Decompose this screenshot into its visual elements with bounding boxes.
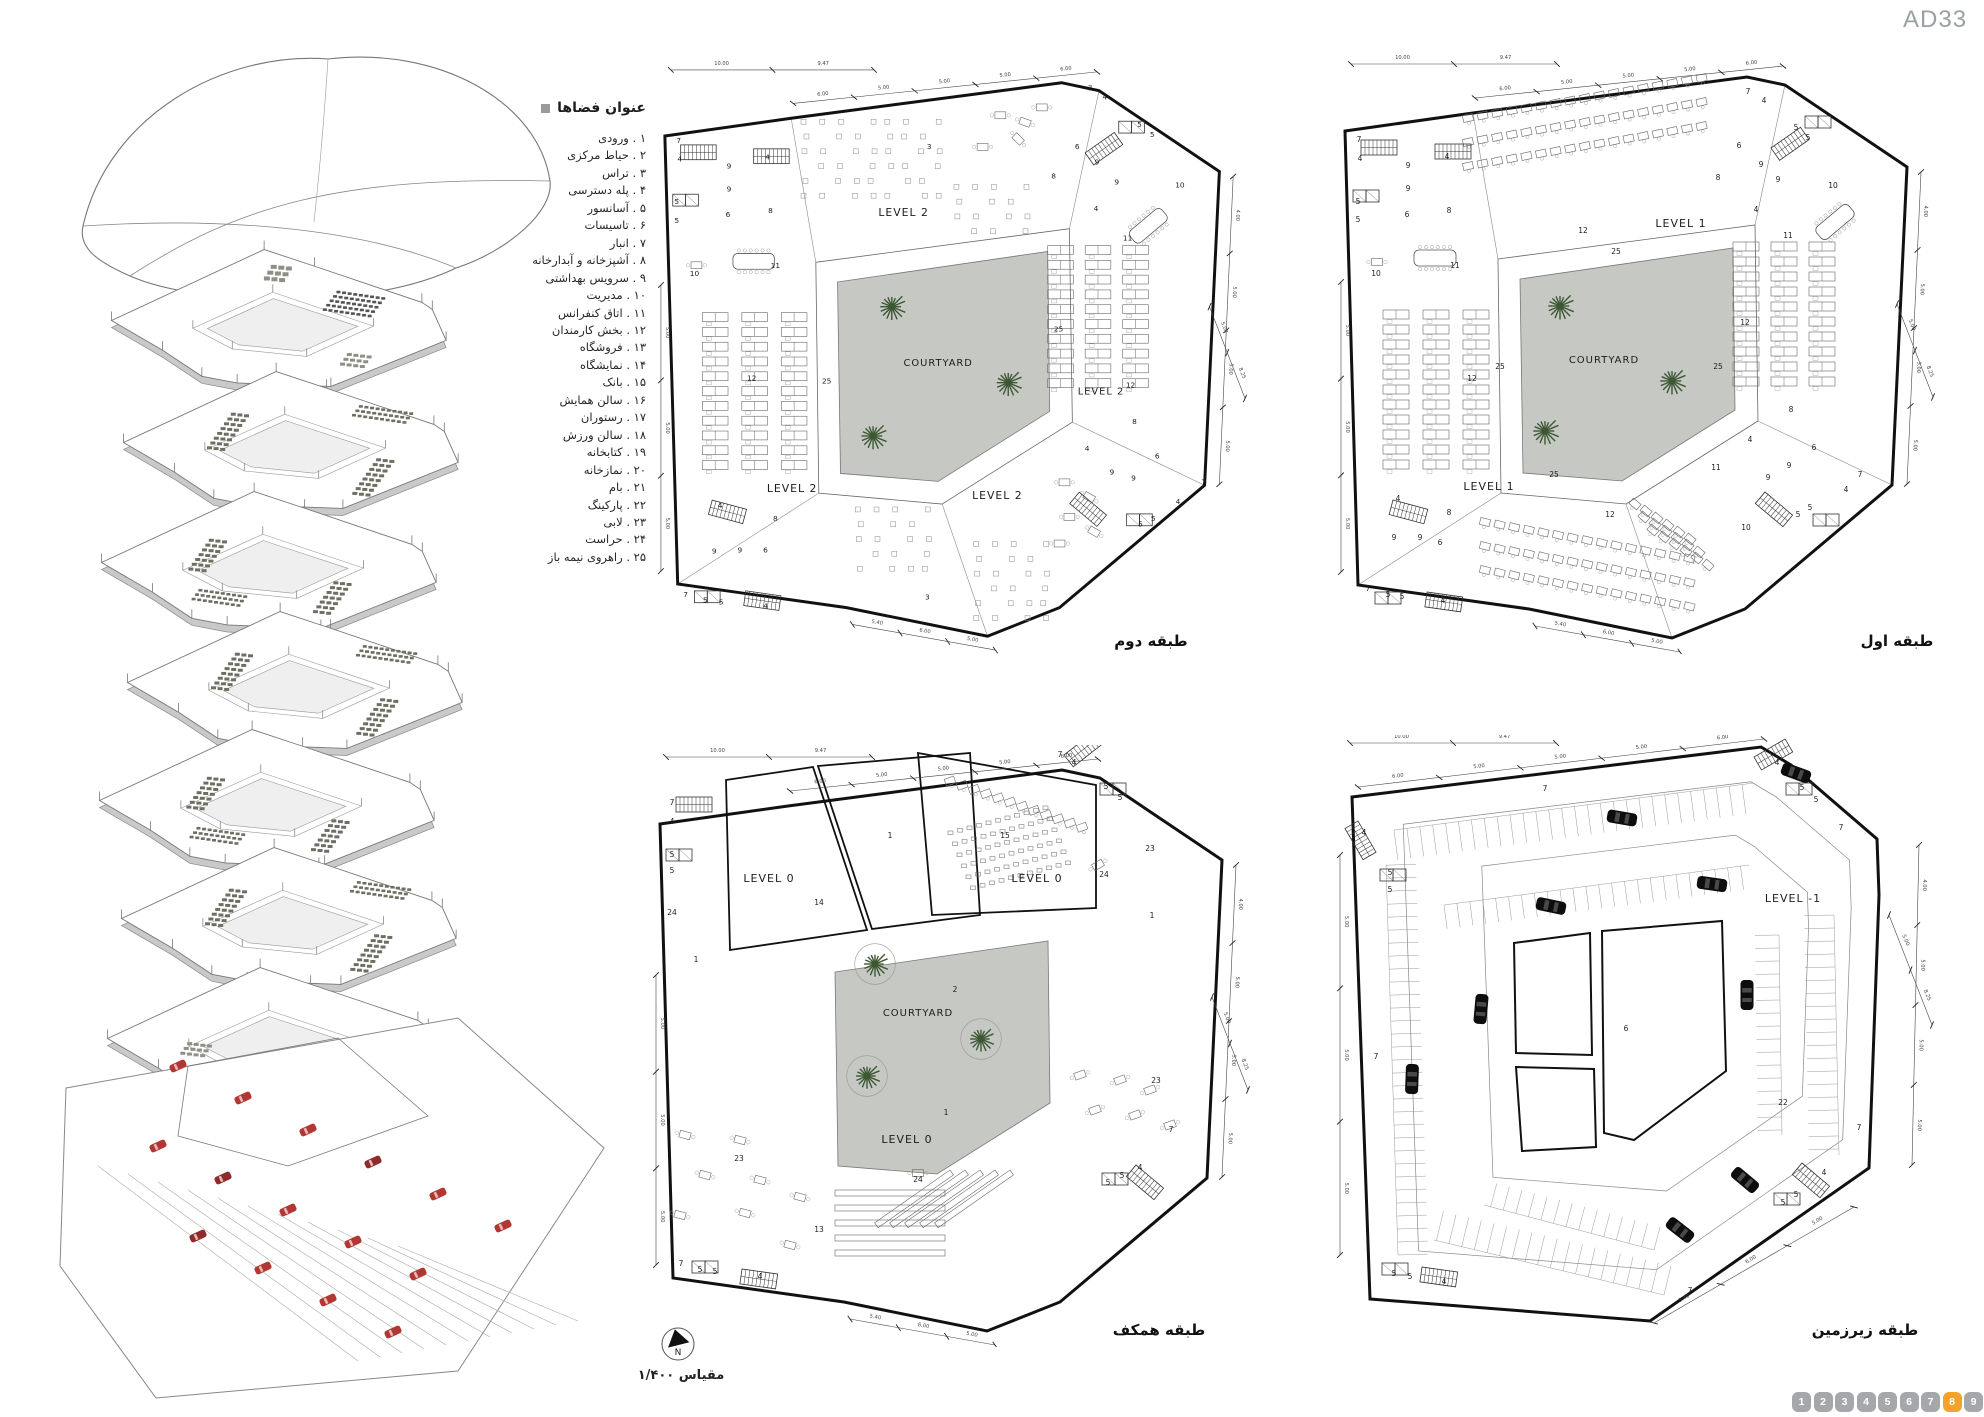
page-button-4[interactable]: 4 xyxy=(1857,1392,1876,1412)
page-pagination: 123456789 xyxy=(1792,1392,1983,1412)
svg-text:5: 5 xyxy=(1106,1178,1111,1187)
svg-text:6.00: 6.00 xyxy=(1392,773,1404,780)
svg-text:7: 7 xyxy=(1839,823,1844,832)
svg-text:8: 8 xyxy=(773,514,778,523)
legend-item: ۱۵ . بانک xyxy=(398,374,646,391)
svg-text:7: 7 xyxy=(1058,750,1063,759)
svg-text:5: 5 xyxy=(1150,130,1155,139)
svg-text:5.00: 5.00 xyxy=(659,1114,665,1126)
svg-text:12: 12 xyxy=(1740,318,1750,327)
presentation-board: AD33 عنوان فضاها ۱ . ورودی۲ . حیاط مرکزی… xyxy=(0,0,1984,1417)
svg-text:5: 5 xyxy=(713,1267,718,1276)
legend-item: ۳ . تراس xyxy=(398,165,646,182)
svg-text:4: 4 xyxy=(1748,435,1753,444)
plan-title-ground: طبقه همکف xyxy=(1069,1321,1249,1339)
svg-text:25: 25 xyxy=(1495,362,1505,371)
svg-text:23: 23 xyxy=(1145,844,1155,853)
svg-text:5: 5 xyxy=(1800,783,1805,792)
svg-text:6.00: 6.00 xyxy=(1717,735,1729,741)
svg-text:5: 5 xyxy=(703,596,708,605)
svg-text:6: 6 xyxy=(1624,1024,1629,1033)
svg-text:4: 4 xyxy=(1442,1277,1447,1286)
svg-text:5: 5 xyxy=(1781,1198,1786,1207)
plan-title-basement: طبقه زیرزمین xyxy=(1775,1321,1955,1339)
svg-text:10: 10 xyxy=(1175,180,1185,189)
svg-text:5: 5 xyxy=(1386,590,1391,599)
svg-text:4: 4 xyxy=(1822,1168,1827,1177)
scale-note: مقیاس ۱/۴۰۰ xyxy=(626,1368,736,1383)
svg-text:8.25: 8.25 xyxy=(1237,367,1247,380)
svg-text:9.47: 9.47 xyxy=(815,748,827,754)
svg-text:7: 7 xyxy=(679,1259,684,1268)
svg-text:4: 4 xyxy=(763,602,768,611)
svg-text:5.00: 5.00 xyxy=(1226,1132,1233,1144)
svg-text:10: 10 xyxy=(1371,269,1381,278)
svg-text:6: 6 xyxy=(1405,210,1410,219)
svg-text:5.00: 5.00 xyxy=(1900,934,1910,947)
svg-text:7: 7 xyxy=(1858,470,1863,479)
svg-text:8.25: 8.25 xyxy=(1922,989,1932,1002)
svg-text:COURTYARD: COURTYARD xyxy=(883,1008,953,1019)
svg-text:5.00: 5.00 xyxy=(1219,321,1229,334)
svg-text:LEVEL 2: LEVEL 2 xyxy=(767,482,817,495)
svg-text:5.00: 5.00 xyxy=(937,765,949,772)
legend-item: ۲۳ . لابی xyxy=(398,514,646,531)
legend-item: ۱۸ . سالن ورزش xyxy=(398,427,646,444)
legend-title: عنوان فضاها xyxy=(557,100,646,116)
svg-text:5.00: 5.00 xyxy=(664,422,670,433)
svg-text:5: 5 xyxy=(1104,782,1109,791)
svg-text:1: 1 xyxy=(944,1108,949,1117)
svg-text:3: 3 xyxy=(925,593,930,602)
svg-text:4: 4 xyxy=(1396,494,1401,503)
svg-text:9: 9 xyxy=(712,546,717,555)
svg-text:5.00: 5.00 xyxy=(1916,1119,1922,1131)
svg-text:11: 11 xyxy=(771,261,781,270)
svg-text:24: 24 xyxy=(913,1175,923,1184)
svg-text:11: 11 xyxy=(1711,463,1721,472)
legend-item: ۱۱ . اتاق کنفرانس xyxy=(398,305,646,322)
svg-text:5.40: 5.40 xyxy=(869,1313,881,1321)
svg-text:5.00: 5.00 xyxy=(1917,1039,1923,1051)
svg-text:5.00: 5.00 xyxy=(1233,976,1240,988)
svg-text:5.00: 5.00 xyxy=(1473,763,1485,770)
svg-text:4: 4 xyxy=(1441,596,1446,605)
svg-text:9: 9 xyxy=(1109,467,1114,476)
svg-text:5.00: 5.00 xyxy=(938,78,950,85)
svg-text:5.00: 5.00 xyxy=(659,1211,665,1223)
svg-text:5: 5 xyxy=(670,866,675,875)
svg-text:23: 23 xyxy=(1151,1076,1161,1085)
svg-text:7: 7 xyxy=(683,590,688,599)
svg-text:25: 25 xyxy=(822,377,832,386)
svg-text:9.47: 9.47 xyxy=(818,61,829,67)
legend-item-list: ۱ . ورودی۲ . حیاط مرکزی۳ . تراس۴ . پله د… xyxy=(398,130,646,566)
svg-text:4: 4 xyxy=(1762,96,1767,105)
svg-text:5: 5 xyxy=(1400,592,1405,601)
svg-text:5.00: 5.00 xyxy=(1918,283,1925,295)
svg-text:4: 4 xyxy=(1103,93,1108,102)
legend-item: ۱۰ . مدیریت xyxy=(398,287,646,304)
svg-text:7: 7 xyxy=(1088,84,1093,93)
legend-item: ۲ . حیاط مرکزی xyxy=(398,147,646,164)
legend-item: ۶ . تاسیسات xyxy=(398,217,646,234)
svg-text:4.00: 4.00 xyxy=(1922,205,1929,217)
svg-text:6: 6 xyxy=(1075,142,1080,151)
svg-text:5.00: 5.00 xyxy=(1561,79,1573,86)
svg-text:5.00: 5.00 xyxy=(1231,286,1238,298)
svg-text:9: 9 xyxy=(738,545,743,554)
svg-text:4: 4 xyxy=(1844,485,1849,494)
svg-text:5: 5 xyxy=(698,1265,703,1274)
svg-text:4: 4 xyxy=(1085,444,1090,453)
legend-item: ۸ . آشپزخانه و آبدارخانه xyxy=(398,252,646,269)
plan-title-first: طبقه اول xyxy=(1807,632,1984,650)
svg-text:9: 9 xyxy=(1787,461,1792,470)
legend-item: ۲۴ . حراست xyxy=(398,531,646,548)
svg-text:5: 5 xyxy=(1388,885,1393,894)
svg-text:LEVEL 2: LEVEL 2 xyxy=(972,489,1022,502)
svg-text:24: 24 xyxy=(1099,870,1109,879)
svg-text:6.00: 6.00 xyxy=(917,1322,929,1330)
svg-text:9: 9 xyxy=(1766,473,1771,482)
svg-text:5.00: 5.00 xyxy=(1344,518,1350,530)
svg-text:9: 9 xyxy=(1406,161,1411,170)
svg-text:9: 9 xyxy=(1759,160,1764,169)
svg-text:25: 25 xyxy=(1611,247,1621,256)
svg-text:5.00: 5.00 xyxy=(1915,361,1922,373)
svg-text:5.00: 5.00 xyxy=(1343,1049,1349,1061)
svg-text:4: 4 xyxy=(1176,497,1181,506)
svg-text:6: 6 xyxy=(1155,452,1160,461)
svg-text:8: 8 xyxy=(1132,417,1137,426)
page-button-8[interactable]: 8 xyxy=(1943,1392,1962,1412)
svg-text:8: 8 xyxy=(768,206,773,215)
svg-text:10: 10 xyxy=(1828,181,1838,190)
svg-text:4: 4 xyxy=(765,153,770,162)
svg-text:4: 4 xyxy=(1754,205,1759,214)
svg-text:7: 7 xyxy=(670,798,675,807)
svg-text:5: 5 xyxy=(1138,520,1143,529)
svg-text:6.00: 6.00 xyxy=(814,778,826,785)
svg-text:11: 11 xyxy=(1783,231,1793,240)
svg-text:10.00: 10.00 xyxy=(710,748,725,754)
svg-text:9: 9 xyxy=(727,162,732,171)
svg-text:LEVEL 0: LEVEL 0 xyxy=(743,872,794,885)
svg-text:2: 2 xyxy=(953,985,958,994)
svg-text:9: 9 xyxy=(1392,533,1397,542)
svg-text:5: 5 xyxy=(1356,197,1361,206)
svg-text:LEVEL 0: LEVEL 0 xyxy=(1011,872,1062,885)
svg-text:5.00: 5.00 xyxy=(966,636,978,644)
legend-item: ۲۰ . نمازخانه xyxy=(398,462,646,479)
svg-text:7: 7 xyxy=(1374,1052,1379,1061)
svg-text:5.00: 5.00 xyxy=(1919,959,1925,971)
sheet-code: AD33 xyxy=(1903,6,1967,34)
floor-plan-second: 10.009.476.005.005.005.006.004.005.005.0… xyxy=(655,58,1247,660)
svg-text:5.40: 5.40 xyxy=(1554,620,1566,628)
svg-text:LEVEL -1: LEVEL -1 xyxy=(1765,892,1821,905)
svg-text:4.00: 4.00 xyxy=(1237,898,1244,910)
svg-text:4: 4 xyxy=(1445,152,1450,161)
svg-text:12: 12 xyxy=(1467,374,1477,383)
svg-text:5.00: 5.00 xyxy=(1224,440,1231,452)
svg-text:9: 9 xyxy=(1418,533,1423,542)
svg-text:5.00: 5.00 xyxy=(664,327,670,338)
space-legend: عنوان فضاها ۱ . ورودی۲ . حیاط مرکزی۳ . ت… xyxy=(398,100,646,566)
svg-text:5.00: 5.00 xyxy=(1230,1054,1237,1066)
svg-text:8: 8 xyxy=(1447,206,1452,215)
svg-text:6.00: 6.00 xyxy=(1499,85,1511,92)
svg-text:14: 14 xyxy=(814,898,824,907)
legend-item: ۲۵ . راهروی نیمه باز xyxy=(398,549,646,566)
svg-text:5: 5 xyxy=(1808,503,1813,512)
legend-item: ۱۶ . سالن همایش xyxy=(398,392,646,409)
page-button-3[interactable]: 3 xyxy=(1835,1392,1854,1412)
svg-text:7: 7 xyxy=(1857,1123,1862,1132)
svg-text:7: 7 xyxy=(1543,784,1548,793)
legend-item: ۱۴ . نمایشگاه xyxy=(398,357,646,374)
svg-text:1: 1 xyxy=(888,831,893,840)
svg-text:4.00: 4.00 xyxy=(1921,879,1927,891)
svg-text:6: 6 xyxy=(1812,443,1817,452)
svg-text:5: 5 xyxy=(1137,120,1142,129)
svg-text:5.00: 5.00 xyxy=(1622,72,1634,79)
svg-text:5.00: 5.00 xyxy=(1344,421,1350,433)
svg-text:5.00: 5.00 xyxy=(1222,1012,1232,1025)
svg-text:4: 4 xyxy=(1775,758,1780,767)
svg-text:LEVEL 2: LEVEL 2 xyxy=(878,206,928,219)
svg-text:25: 25 xyxy=(1549,470,1559,479)
svg-text:5.00: 5.00 xyxy=(1907,319,1917,332)
svg-text:12: 12 xyxy=(747,374,756,383)
svg-text:5: 5 xyxy=(1814,795,1819,804)
svg-text:5.00: 5.00 xyxy=(999,759,1011,766)
svg-text:6.00: 6.00 xyxy=(1602,629,1614,637)
svg-text:5.00: 5.00 xyxy=(1811,1216,1824,1227)
svg-text:6: 6 xyxy=(1737,141,1742,150)
page-button-2[interactable]: 2 xyxy=(1814,1392,1833,1412)
legend-item: ۱۳ . فروشگاه xyxy=(398,339,646,356)
svg-text:5.00: 5.00 xyxy=(1344,325,1350,337)
legend-item: ۴ . پله دسترسی xyxy=(398,182,646,199)
svg-text:5.00: 5.00 xyxy=(664,518,670,529)
svg-text:5.00: 5.00 xyxy=(1343,916,1349,928)
svg-text:5: 5 xyxy=(1118,793,1123,802)
svg-text:COURTYARD: COURTYARD xyxy=(1569,355,1639,366)
svg-text:10.00: 10.00 xyxy=(714,61,729,67)
svg-text:6: 6 xyxy=(726,210,731,219)
svg-text:9: 9 xyxy=(1131,473,1136,482)
north-arrow: N xyxy=(658,1324,698,1368)
svg-text:5.00: 5.00 xyxy=(1651,638,1663,646)
svg-text:7: 7 xyxy=(1169,1125,1174,1134)
svg-text:6.00: 6.00 xyxy=(1744,1254,1757,1265)
svg-text:7: 7 xyxy=(1201,477,1206,486)
floor-plan-basement: 10.009.476.005.005.005.006.004.005.005.0… xyxy=(1318,735,1950,1337)
svg-text:1: 1 xyxy=(1150,911,1155,920)
svg-text:4: 4 xyxy=(1094,204,1099,213)
svg-text:1: 1 xyxy=(694,955,699,964)
svg-text:6: 6 xyxy=(763,545,768,554)
svg-text:5: 5 xyxy=(670,850,675,859)
svg-text:5: 5 xyxy=(1806,133,1811,142)
legend-item: ۱۷ . رستوران xyxy=(398,409,646,426)
svg-text:5.40: 5.40 xyxy=(871,619,883,627)
svg-text:4: 4 xyxy=(677,155,682,164)
svg-text:8: 8 xyxy=(1716,173,1721,182)
svg-text:15: 15 xyxy=(1000,831,1010,840)
svg-text:5.00: 5.00 xyxy=(878,85,890,92)
svg-text:4: 4 xyxy=(1072,758,1077,767)
svg-text:9: 9 xyxy=(1776,175,1781,184)
svg-text:5.00: 5.00 xyxy=(1911,439,1918,451)
svg-text:22: 22 xyxy=(1778,1098,1788,1107)
svg-text:4: 4 xyxy=(1362,828,1367,837)
svg-text:9.47: 9.47 xyxy=(1500,55,1512,61)
svg-text:5.00: 5.00 xyxy=(966,1331,978,1339)
svg-text:COURTYARD: COURTYARD xyxy=(904,358,973,369)
svg-text:4: 4 xyxy=(718,501,723,510)
svg-text:5: 5 xyxy=(1794,1190,1799,1199)
svg-text:8.25: 8.25 xyxy=(1925,365,1935,378)
svg-text:7: 7 xyxy=(1366,584,1371,593)
svg-text:12: 12 xyxy=(1605,510,1615,519)
svg-text:6.00: 6.00 xyxy=(1746,60,1758,67)
svg-text:6.00: 6.00 xyxy=(919,627,931,635)
legend-bullet-square xyxy=(541,104,550,113)
svg-text:5: 5 xyxy=(719,598,724,607)
svg-text:5: 5 xyxy=(1388,868,1393,877)
svg-text:5: 5 xyxy=(674,197,679,206)
svg-text:5: 5 xyxy=(1392,1269,1397,1278)
legend-item: ۱۲ . بخش کارمندان xyxy=(398,322,646,339)
svg-text:9: 9 xyxy=(727,184,732,193)
svg-text:5: 5 xyxy=(1120,1171,1125,1180)
page-button-7[interactable]: 7 xyxy=(1921,1392,1940,1412)
svg-text:6: 6 xyxy=(1438,538,1443,547)
svg-text:5.00: 5.00 xyxy=(876,772,888,779)
svg-text:7: 7 xyxy=(1746,87,1751,96)
svg-text:25: 25 xyxy=(1713,362,1723,371)
svg-text:5: 5 xyxy=(1151,514,1156,523)
svg-text:5.00: 5.00 xyxy=(1635,744,1647,751)
svg-text:4: 4 xyxy=(670,817,675,826)
svg-text:5: 5 xyxy=(1796,510,1801,519)
svg-text:LEVEL 0: LEVEL 0 xyxy=(881,1133,932,1146)
svg-text:10.00: 10.00 xyxy=(1394,735,1409,740)
svg-text:10.00: 10.00 xyxy=(1395,55,1410,61)
svg-text:8: 8 xyxy=(1447,508,1452,517)
svg-text:10: 10 xyxy=(1741,523,1751,532)
svg-text:5.00: 5.00 xyxy=(659,1018,665,1030)
svg-text:8.25: 8.25 xyxy=(1240,1058,1250,1071)
plan-title-second: طبقه دوم xyxy=(1061,632,1241,650)
legend-item: ۹ . سرویس بهداشتی xyxy=(398,270,646,287)
svg-text:11: 11 xyxy=(1450,261,1460,270)
svg-text:5: 5 xyxy=(1408,1272,1413,1281)
svg-text:4.00: 4.00 xyxy=(1234,209,1241,221)
svg-text:9: 9 xyxy=(1114,177,1119,186)
page-button-9[interactable]: 9 xyxy=(1964,1392,1983,1412)
svg-text:8: 8 xyxy=(1789,405,1794,414)
svg-text:7: 7 xyxy=(676,136,681,145)
legend-item: ۱ . ورودی xyxy=(398,130,646,147)
svg-text:LEVEL 1: LEVEL 1 xyxy=(1655,217,1706,230)
svg-text:4: 4 xyxy=(1358,154,1363,163)
svg-text:5: 5 xyxy=(1356,215,1361,224)
page-button-6[interactable]: 6 xyxy=(1900,1392,1919,1412)
legend-item: ۲۲ . پارکینگ xyxy=(398,497,646,514)
svg-text:3: 3 xyxy=(927,142,932,151)
svg-text:5: 5 xyxy=(674,216,679,225)
floor-plan-first: 10.009.476.005.005.005.006.004.005.005.0… xyxy=(1330,52,1940,654)
svg-text:6.00: 6.00 xyxy=(817,91,829,98)
svg-text:5.00: 5.00 xyxy=(1684,66,1696,73)
legend-title-row: عنوان فضاها xyxy=(398,100,646,116)
svg-text:5: 5 xyxy=(1794,123,1799,132)
svg-text:9: 9 xyxy=(1095,158,1100,167)
svg-text:5.00: 5.00 xyxy=(999,72,1011,79)
svg-text:23: 23 xyxy=(734,1154,744,1163)
svg-text:8: 8 xyxy=(1051,171,1056,180)
floor-plan-ground: 10.009.476.005.005.005.006.004.005.005.0… xyxy=(650,745,1250,1347)
svg-text:12: 12 xyxy=(1578,226,1588,235)
legend-item: ۷ . انبار xyxy=(398,235,646,252)
svg-text:11: 11 xyxy=(1123,234,1133,243)
svg-text:9: 9 xyxy=(1406,184,1411,193)
north-letter: N xyxy=(675,1348,682,1358)
svg-text:25: 25 xyxy=(1054,324,1064,333)
svg-text:10: 10 xyxy=(690,269,700,278)
svg-text:9.47: 9.47 xyxy=(1499,735,1511,740)
svg-text:5.00: 5.00 xyxy=(1554,753,1566,760)
svg-text:LEVEL 2: LEVEL 2 xyxy=(1078,387,1125,398)
page-button-1[interactable]: 1 xyxy=(1792,1392,1811,1412)
svg-text:24: 24 xyxy=(667,908,677,917)
page-button-5[interactable]: 5 xyxy=(1878,1392,1897,1412)
svg-text:4: 4 xyxy=(758,1272,763,1281)
legend-item: ۱۹ . کتابخانه xyxy=(398,444,646,461)
svg-text:LEVEL 1: LEVEL 1 xyxy=(1463,480,1514,493)
svg-text:12: 12 xyxy=(1126,381,1135,390)
svg-text:6.00: 6.00 xyxy=(1060,66,1072,73)
legend-item: ۲۱ . بام xyxy=(398,479,646,496)
svg-text:7: 7 xyxy=(1688,1286,1693,1295)
svg-text:13: 13 xyxy=(814,1225,824,1234)
legend-item: ۵ . آسانسور xyxy=(398,200,646,217)
svg-text:4: 4 xyxy=(1138,1163,1143,1172)
svg-text:7: 7 xyxy=(1357,135,1362,144)
svg-text:5.00: 5.00 xyxy=(1343,1183,1349,1195)
svg-text:5.00: 5.00 xyxy=(1227,363,1234,375)
